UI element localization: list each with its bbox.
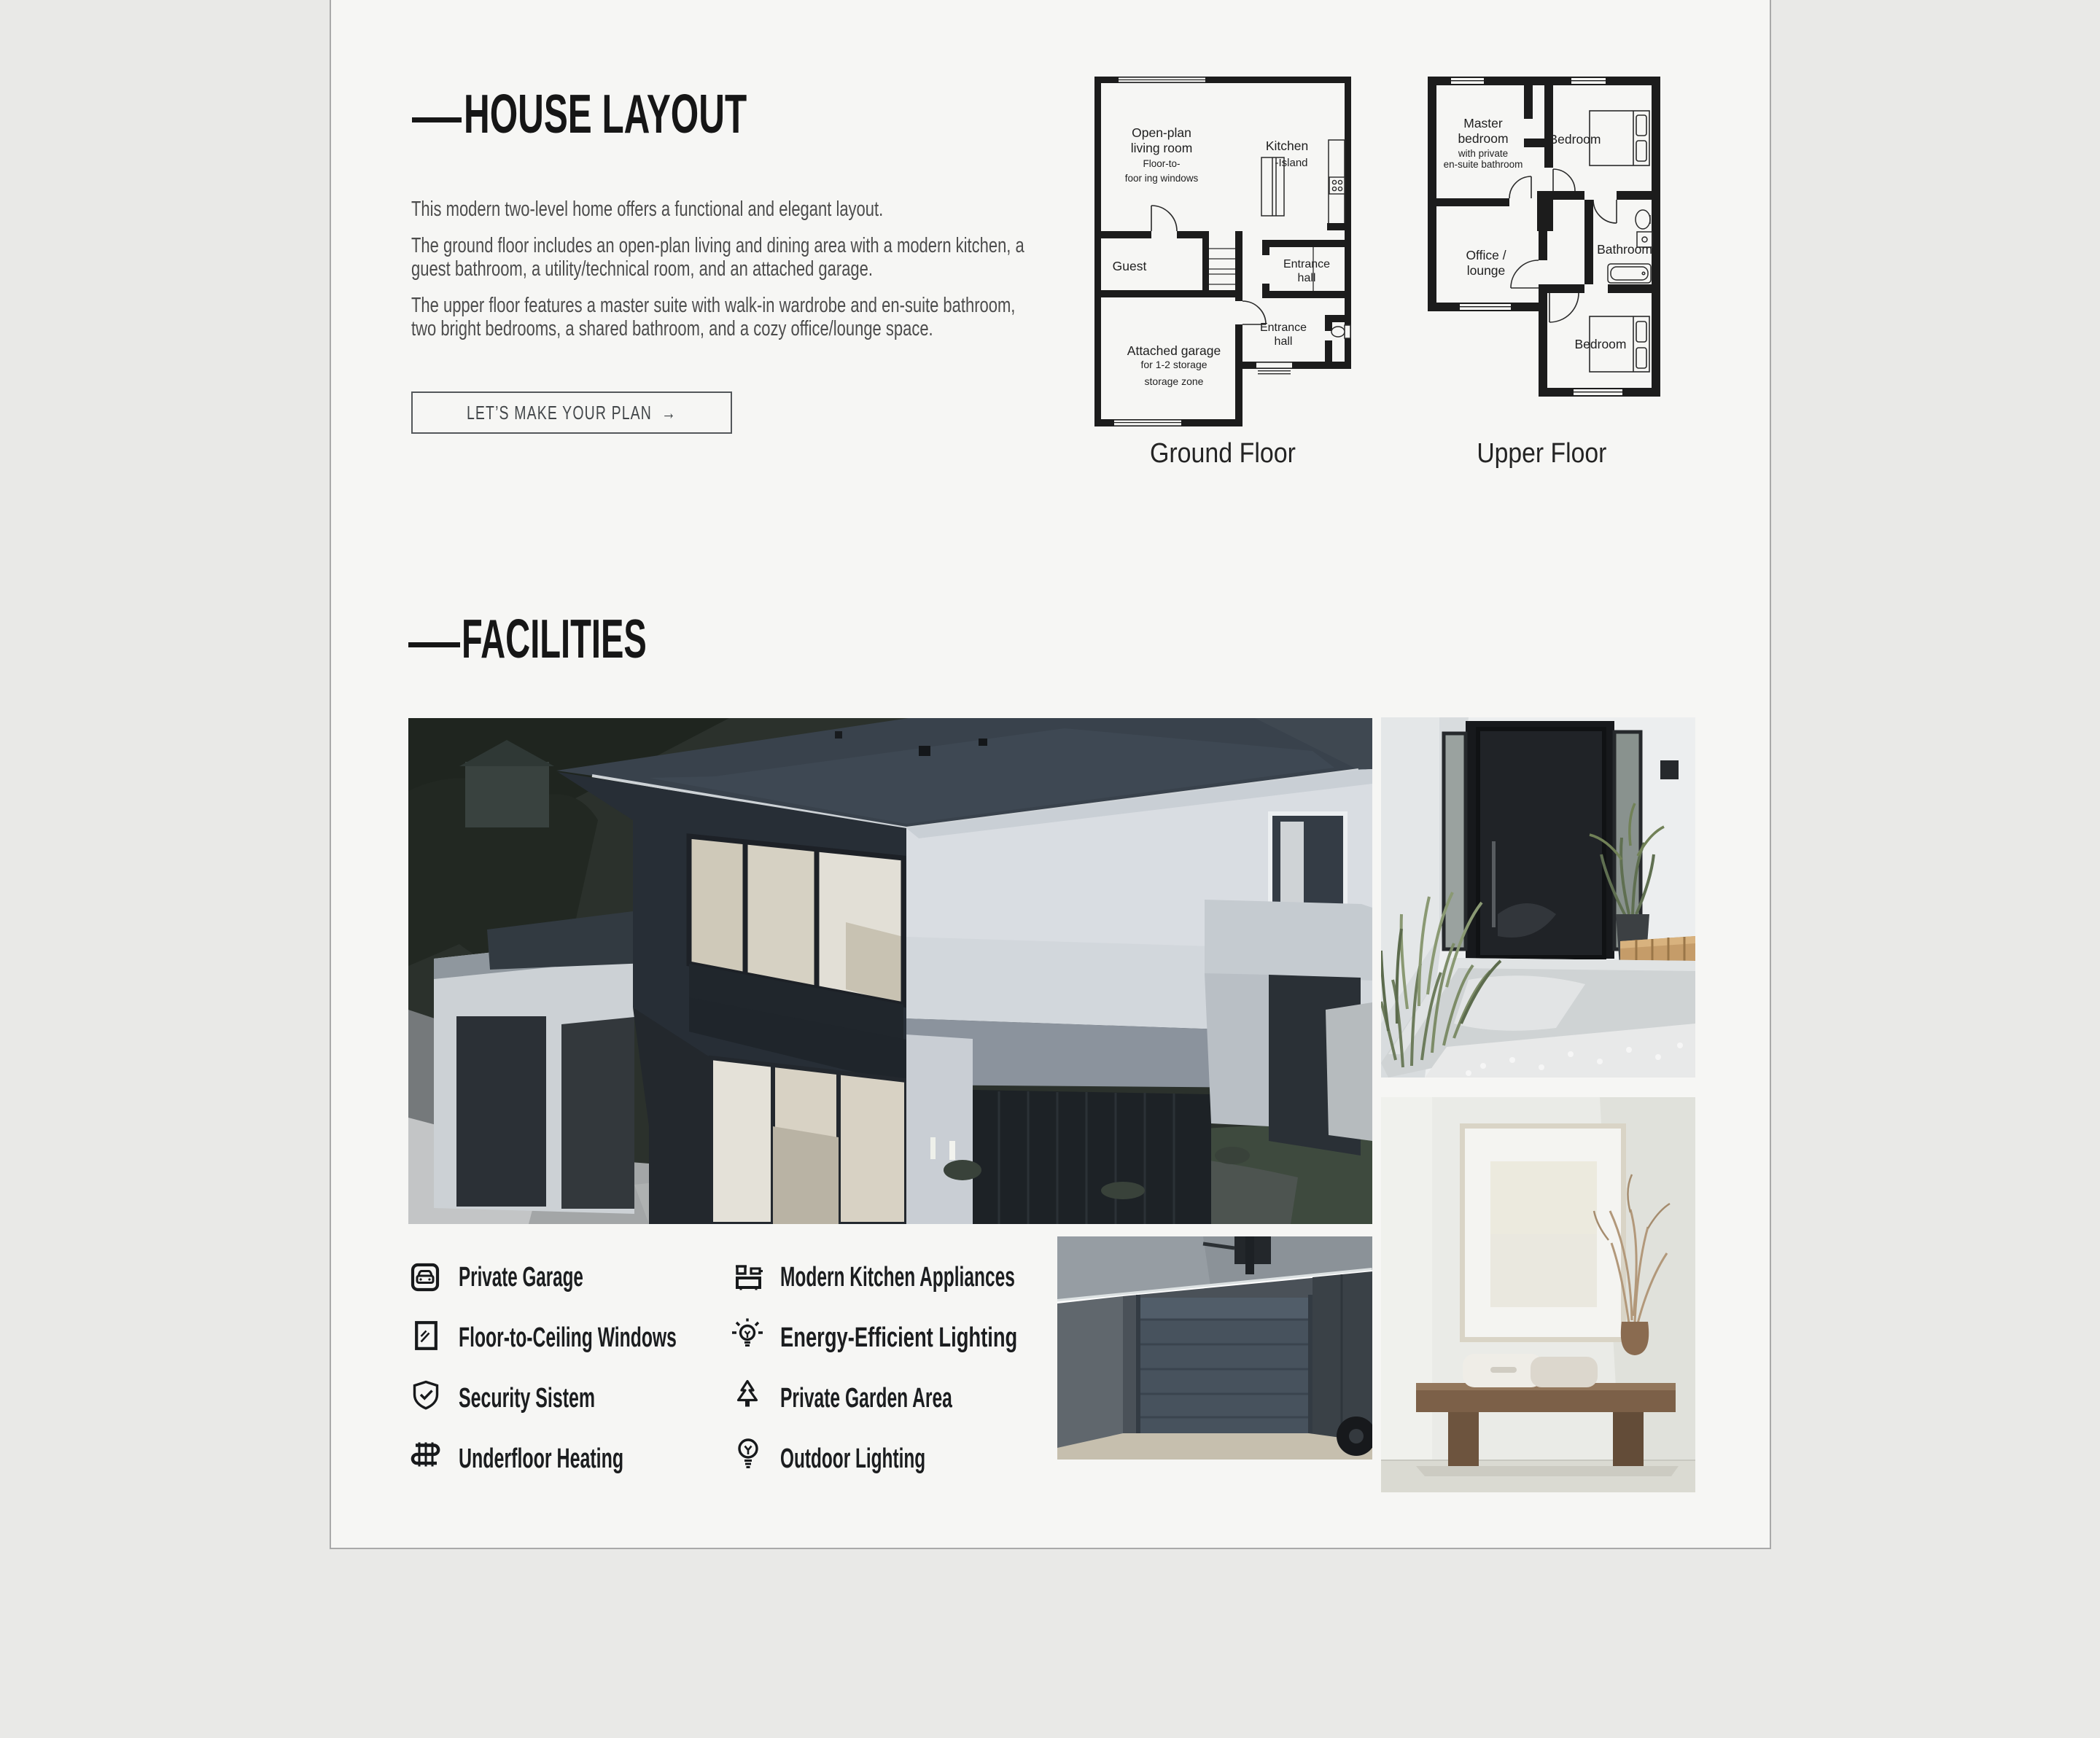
svg-text:Bedroom: Bedroom xyxy=(1549,132,1601,147)
svg-text:Entrance: Entrance xyxy=(1283,258,1330,270)
svg-text:Bedroom: Bedroom xyxy=(1574,337,1626,351)
svg-text:hall: hall xyxy=(1298,272,1316,284)
svg-text:Entrance: Entrance xyxy=(1260,322,1307,334)
svg-text:en-suite bathroom: en-suite bathroom xyxy=(1444,159,1523,170)
svg-text:Kitchen: Kitchen xyxy=(1266,139,1308,153)
svg-text:Floor-to-: Floor-to- xyxy=(1143,158,1180,169)
svg-text:Bathroom: Bathroom xyxy=(1597,242,1652,257)
svg-text:-Island: -Island xyxy=(1275,157,1307,169)
svg-text:foor ing windows: foor ing windows xyxy=(1125,173,1199,184)
svg-text:bedroom: bedroom xyxy=(1458,131,1508,146)
svg-text:Office /: Office / xyxy=(1466,248,1506,262)
svg-text:Guest: Guest xyxy=(1113,259,1147,273)
svg-text:Master: Master xyxy=(1463,116,1503,130)
svg-text:living room: living room xyxy=(1131,141,1193,155)
svg-text:hall: hall xyxy=(1275,335,1293,348)
svg-text:with private: with private xyxy=(1458,148,1508,159)
svg-text:Attached garage: Attached garage xyxy=(1127,343,1221,358)
svg-text:Open-plan: Open-plan xyxy=(1132,125,1191,140)
svg-text:storage zone: storage zone xyxy=(1145,375,1204,387)
svg-text:for 1-2 storage: for 1-2 storage xyxy=(1140,359,1207,370)
svg-text:lounge: lounge xyxy=(1467,263,1506,278)
